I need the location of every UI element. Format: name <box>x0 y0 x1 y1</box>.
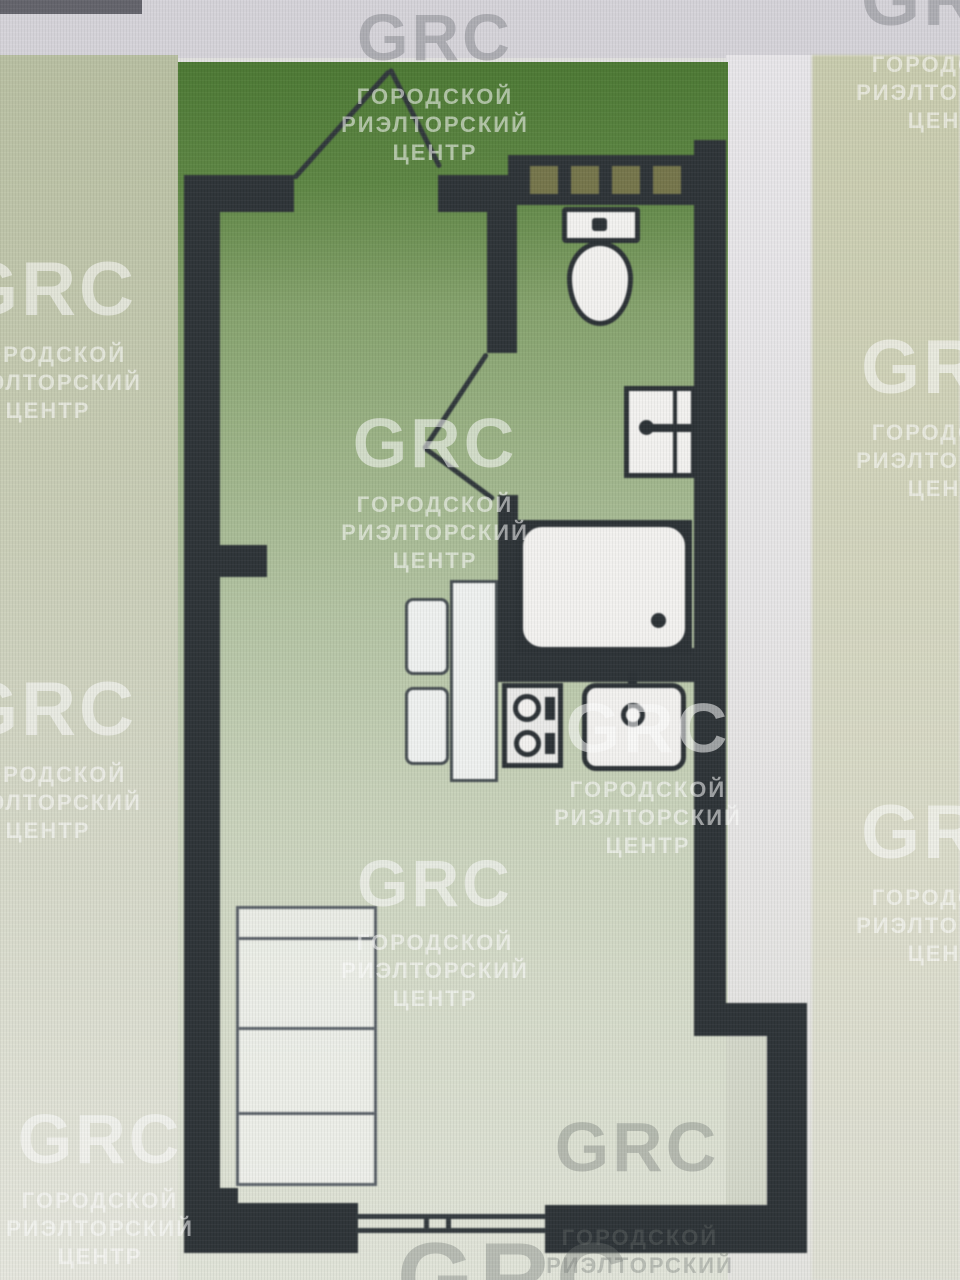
wall-right-jog <box>694 1003 807 1036</box>
window-mullion <box>446 1214 451 1233</box>
washbasin-faucet-knob <box>639 420 654 435</box>
window-mullion <box>424 1214 429 1233</box>
bed-icon <box>236 906 377 1186</box>
toilet-tank-icon <box>562 207 640 243</box>
window-line-outer <box>356 1214 546 1219</box>
stove-burner <box>514 730 541 757</box>
sink-drain <box>621 703 645 727</box>
bathtub-icon <box>518 522 690 652</box>
wall-bathroom-left-upper <box>487 205 517 353</box>
toilet-flush-button <box>592 218 607 231</box>
dining-table-icon <box>450 580 498 782</box>
stove-icon <box>502 683 563 768</box>
stove-control <box>545 697 555 720</box>
vent-block-icon <box>571 166 599 194</box>
wall-bathroom-left-lower <box>498 495 518 648</box>
washbasin-divider <box>673 391 677 473</box>
bathtub-drain <box>651 613 666 628</box>
wall-bottom-right <box>545 1205 807 1253</box>
bed-line <box>239 1027 374 1030</box>
toilet-bowl-icon <box>567 241 633 326</box>
stove-control <box>545 733 555 754</box>
bathtub-surround <box>516 520 692 654</box>
bed-line <box>239 937 374 940</box>
wall-bottom-left <box>200 1203 358 1253</box>
stove-burner <box>513 694 541 722</box>
entry-door-leaf <box>292 69 391 180</box>
wall-hall-stub <box>216 545 267 577</box>
chair-icon <box>405 687 449 765</box>
floor-plan <box>0 0 960 1280</box>
entry-door-swing <box>388 67 443 168</box>
floor-plan-photo: GRC ГОРОДСКОЙ РИЭЛТОРСКИЙ ЦЕНТР GRC ГОРО… <box>0 0 960 1280</box>
window-line-inner <box>356 1228 546 1233</box>
washbasin-icon <box>624 386 696 478</box>
vent-block-icon <box>653 166 681 194</box>
bathroom-door-leaf <box>422 352 489 451</box>
vent-block-icon <box>530 166 558 194</box>
bed-line <box>239 1112 374 1115</box>
wall-right-upper <box>694 140 726 1003</box>
wall-left <box>184 175 220 1253</box>
kitchen-sink-icon <box>582 683 686 771</box>
wall-top-left <box>184 175 294 212</box>
bathroom-door-swing <box>423 445 496 501</box>
chair-icon <box>405 598 449 675</box>
vent-block-icon <box>612 166 640 194</box>
